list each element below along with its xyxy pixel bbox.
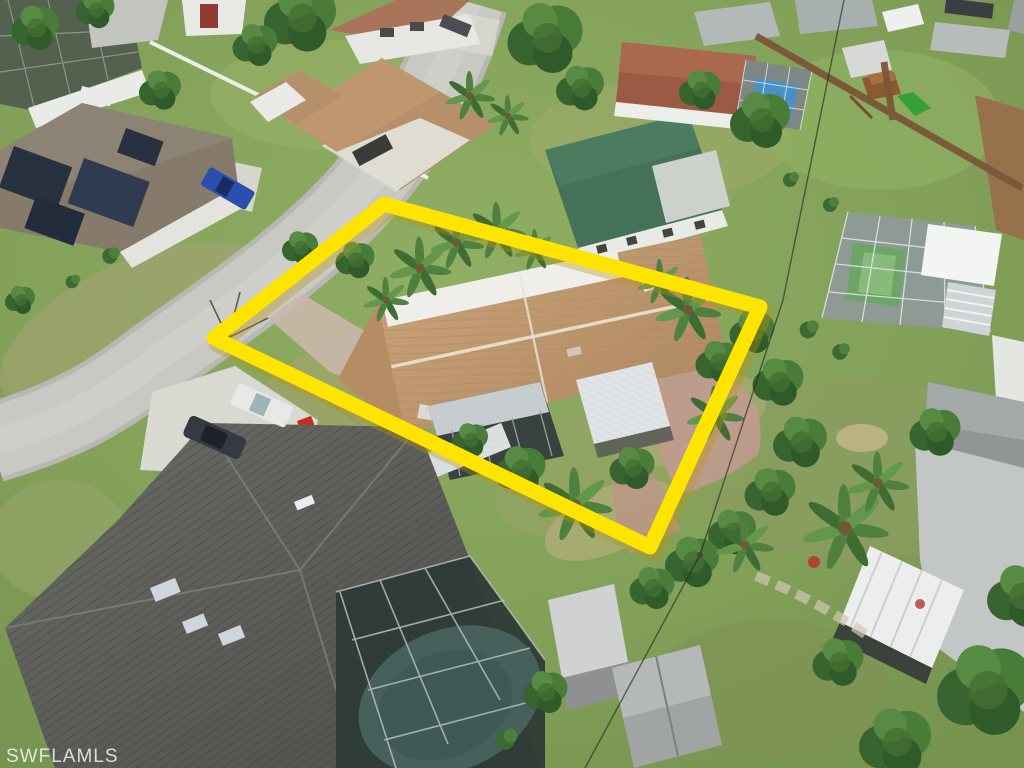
red-plant	[808, 556, 820, 568]
white-canopy	[921, 224, 1002, 286]
aerial-photo-canvas: SWFLAMLS	[0, 0, 1024, 768]
watermark-text: SWFLAMLS	[6, 746, 119, 767]
utility-pole	[697, 552, 703, 558]
aerial-photo: SWFLAMLS	[0, 0, 1024, 768]
